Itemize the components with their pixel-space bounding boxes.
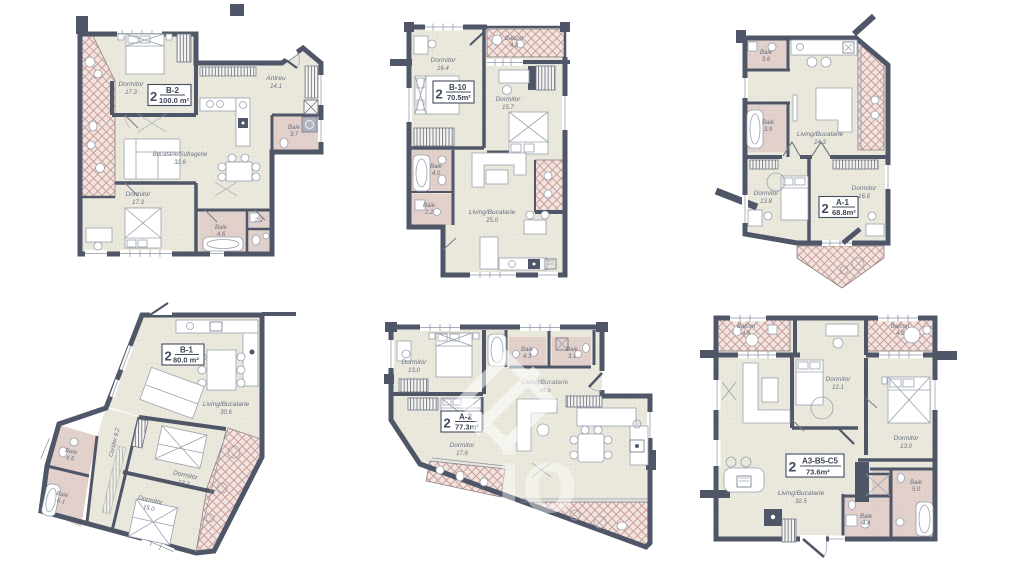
svg-text:73.6m²: 73.6m² xyxy=(806,468,830,477)
svg-text:Living/Bucatarie: Living/Bucatarie xyxy=(469,209,516,216)
svg-text:3.9: 3.9 xyxy=(764,127,773,133)
svg-text:15.7: 15.7 xyxy=(502,105,514,111)
svg-text:80.0 m²: 80.0 m² xyxy=(173,356,199,365)
svg-text:100.0 m²: 100.0 m² xyxy=(159,96,190,105)
svg-text:io: io xyxy=(496,430,578,532)
svg-text:2.2: 2.2 xyxy=(254,218,264,224)
svg-text:Balcon: Balcon xyxy=(737,324,756,330)
svg-text:Antreu: Antreu xyxy=(265,75,286,82)
svg-text:5.0: 5.0 xyxy=(912,487,921,493)
svg-text:16.4: 16.4 xyxy=(437,66,449,72)
svg-text:2: 2 xyxy=(444,416,451,431)
svg-text:Living/Bucatarie: Living/Bucatarie xyxy=(797,131,844,138)
svg-text:Dormitor: Dormitor xyxy=(894,435,920,442)
svg-text:Dormitor: Dormitor xyxy=(402,359,428,366)
svg-text:2: 2 xyxy=(822,201,829,216)
svg-text:B-10: B-10 xyxy=(449,83,467,92)
svg-text:Dormitor: Dormitor xyxy=(119,81,145,88)
svg-text:2.2: 2.2 xyxy=(424,210,434,216)
svg-text:3.6: 3.6 xyxy=(762,57,771,63)
svg-text:Dormitor: Dormitor xyxy=(852,185,878,192)
svg-text:13.8: 13.8 xyxy=(760,199,772,205)
svg-text:Baie: Baie xyxy=(423,203,436,209)
svg-text:Dormitor: Dormitor xyxy=(826,376,852,383)
svg-text:Dormitor: Dormitor xyxy=(431,57,457,64)
svg-text:Balcon: Balcon xyxy=(891,324,910,330)
svg-text:2: 2 xyxy=(165,349,172,364)
svg-text:70.5m²: 70.5m² xyxy=(447,93,471,102)
svg-text:16.6: 16.6 xyxy=(858,194,870,200)
svg-text:Dormitor: Dormitor xyxy=(496,96,522,103)
svg-text:B-1: B-1 xyxy=(180,346,193,355)
svg-text:68.8m²: 68.8m² xyxy=(832,208,856,217)
svg-text:2: 2 xyxy=(789,459,797,475)
svg-text:4.3: 4.3 xyxy=(523,354,532,360)
svg-text:Bucatarie/Sufragerie: Bucatarie/Sufragerie xyxy=(153,152,208,158)
svg-text:17.6: 17.6 xyxy=(456,451,468,457)
svg-text:4.2: 4.2 xyxy=(896,331,905,337)
svg-text:Dormitor: Dormitor xyxy=(126,191,152,198)
svg-text:Dormitor: Dormitor xyxy=(754,190,780,197)
svg-text:Baie: Baie xyxy=(910,480,923,486)
svg-text:32.6: 32.6 xyxy=(174,160,186,166)
svg-text:2: 2 xyxy=(436,87,443,102)
svg-text:Baie: Baie xyxy=(521,347,534,353)
svg-text:17.3: 17.3 xyxy=(125,90,137,96)
svg-text:Living/Bucatarie: Living/Bucatarie xyxy=(203,401,250,408)
svg-text:3.7: 3.7 xyxy=(290,132,299,138)
svg-text:4.3: 4.3 xyxy=(510,43,519,49)
svg-text:3.1: 3.1 xyxy=(568,354,576,360)
svg-text:4.4: 4.4 xyxy=(862,521,871,527)
svg-text:4.6: 4.6 xyxy=(742,331,751,337)
svg-text:Baie: Baie xyxy=(430,164,443,170)
svg-text:Baie: Baie xyxy=(860,514,873,520)
svg-text:Balcon: Balcon xyxy=(505,36,524,42)
svg-text:Living/Bucatarie: Living/Bucatarie xyxy=(778,490,825,497)
svg-text:Baie: Baie xyxy=(288,125,301,131)
svg-text:4.0: 4.0 xyxy=(432,171,441,177)
svg-text:A3-B5-C5: A3-B5-C5 xyxy=(802,457,839,466)
svg-text:13.0: 13.0 xyxy=(900,444,912,450)
svg-text:Baie: Baie xyxy=(566,347,579,353)
svg-text:2: 2 xyxy=(150,89,157,104)
svg-text:Baie: Baie xyxy=(760,50,773,56)
svg-text:Baie: Baie xyxy=(762,120,775,126)
svg-text:Dormitor: Dormitor xyxy=(450,442,476,449)
svg-text:17.3: 17.3 xyxy=(132,200,144,206)
svg-text:25.0: 25.0 xyxy=(485,218,498,224)
svg-text:13.0: 13.0 xyxy=(408,368,420,374)
svg-text:B-2: B-2 xyxy=(166,86,179,95)
svg-text:4.6: 4.6 xyxy=(217,232,226,238)
svg-text:32.5: 32.5 xyxy=(795,499,807,505)
svg-text:14.1: 14.1 xyxy=(270,84,282,90)
svg-text:A-1: A-1 xyxy=(836,198,849,207)
svg-text:30.6: 30.6 xyxy=(220,410,232,416)
svg-text:12.1: 12.1 xyxy=(832,385,844,391)
svg-text:Baie: Baie xyxy=(215,225,228,231)
svg-text:24.3: 24.3 xyxy=(813,140,826,146)
